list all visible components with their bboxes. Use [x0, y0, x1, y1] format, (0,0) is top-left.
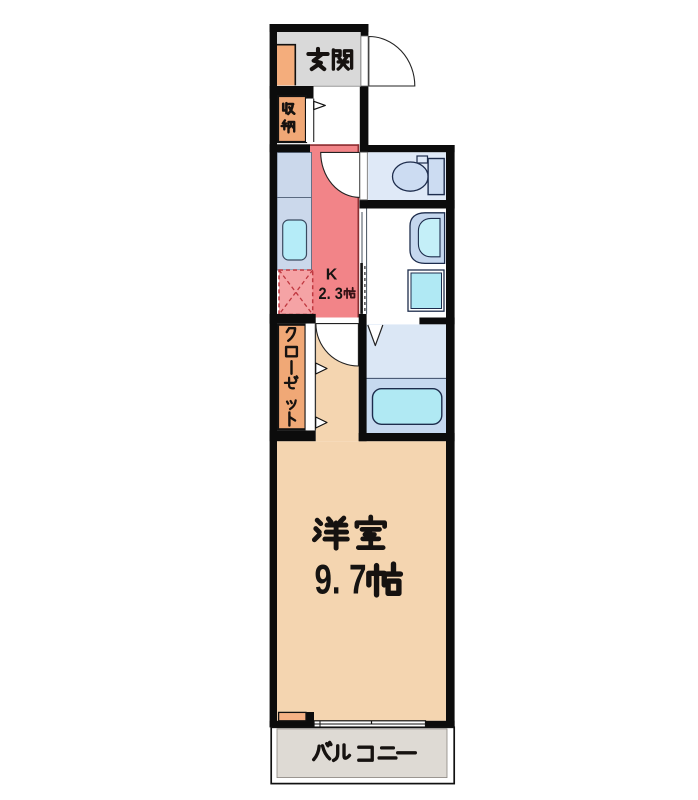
svg-text:2. 3: 2. 3	[319, 285, 343, 303]
svg-text:K: K	[326, 266, 338, 283]
svg-text:9. 7: 9. 7	[315, 556, 367, 603]
